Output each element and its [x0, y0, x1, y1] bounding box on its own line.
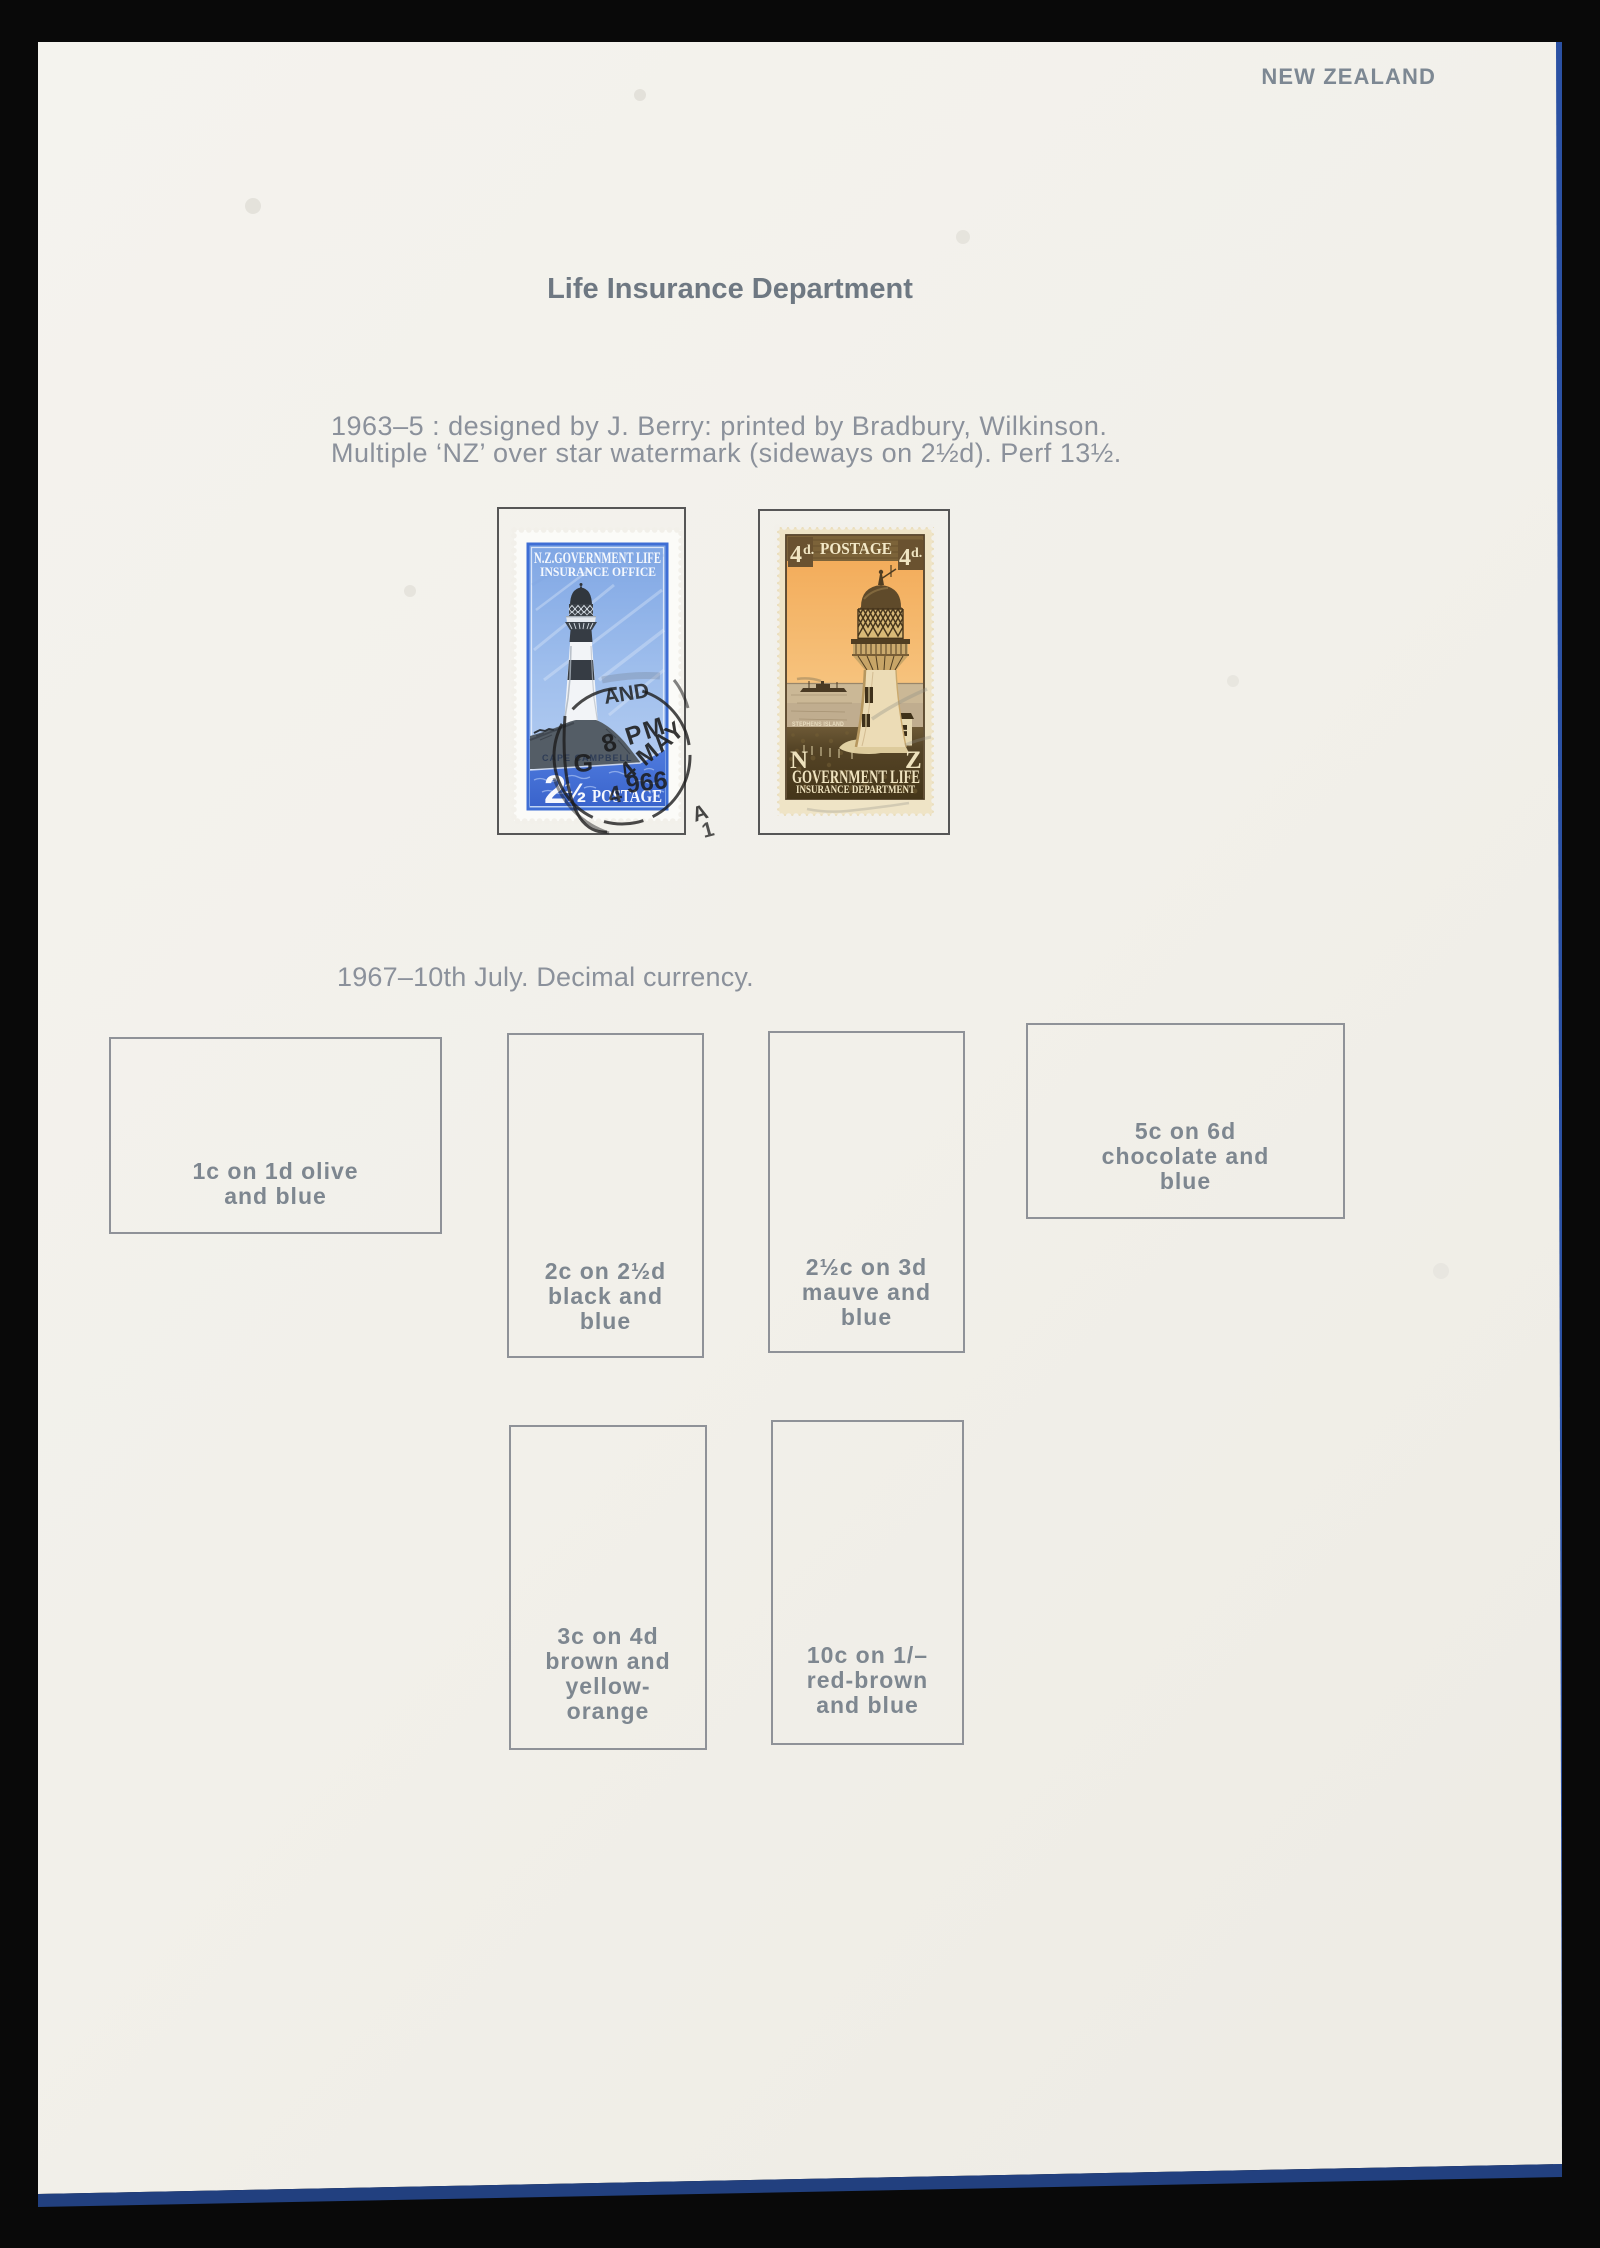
svg-text:d.: d.: [911, 546, 922, 561]
svg-text:STEPHENS ISLAND: STEPHENS ISLAND: [792, 721, 844, 728]
svg-text:d.: d.: [803, 543, 814, 558]
svg-text:POSTAGE: POSTAGE: [820, 539, 892, 558]
svg-text:G: G: [573, 749, 594, 778]
svg-text:966: 966: [624, 766, 669, 799]
svg-text:INSURANCE OFFICE: INSURANCE OFFICE: [540, 564, 656, 579]
svg-text:INSURANCE DEPARTMENT: INSURANCE DEPARTMENT: [796, 782, 915, 796]
svg-text:4: 4: [790, 542, 802, 568]
svg-text:4: 4: [899, 545, 911, 571]
